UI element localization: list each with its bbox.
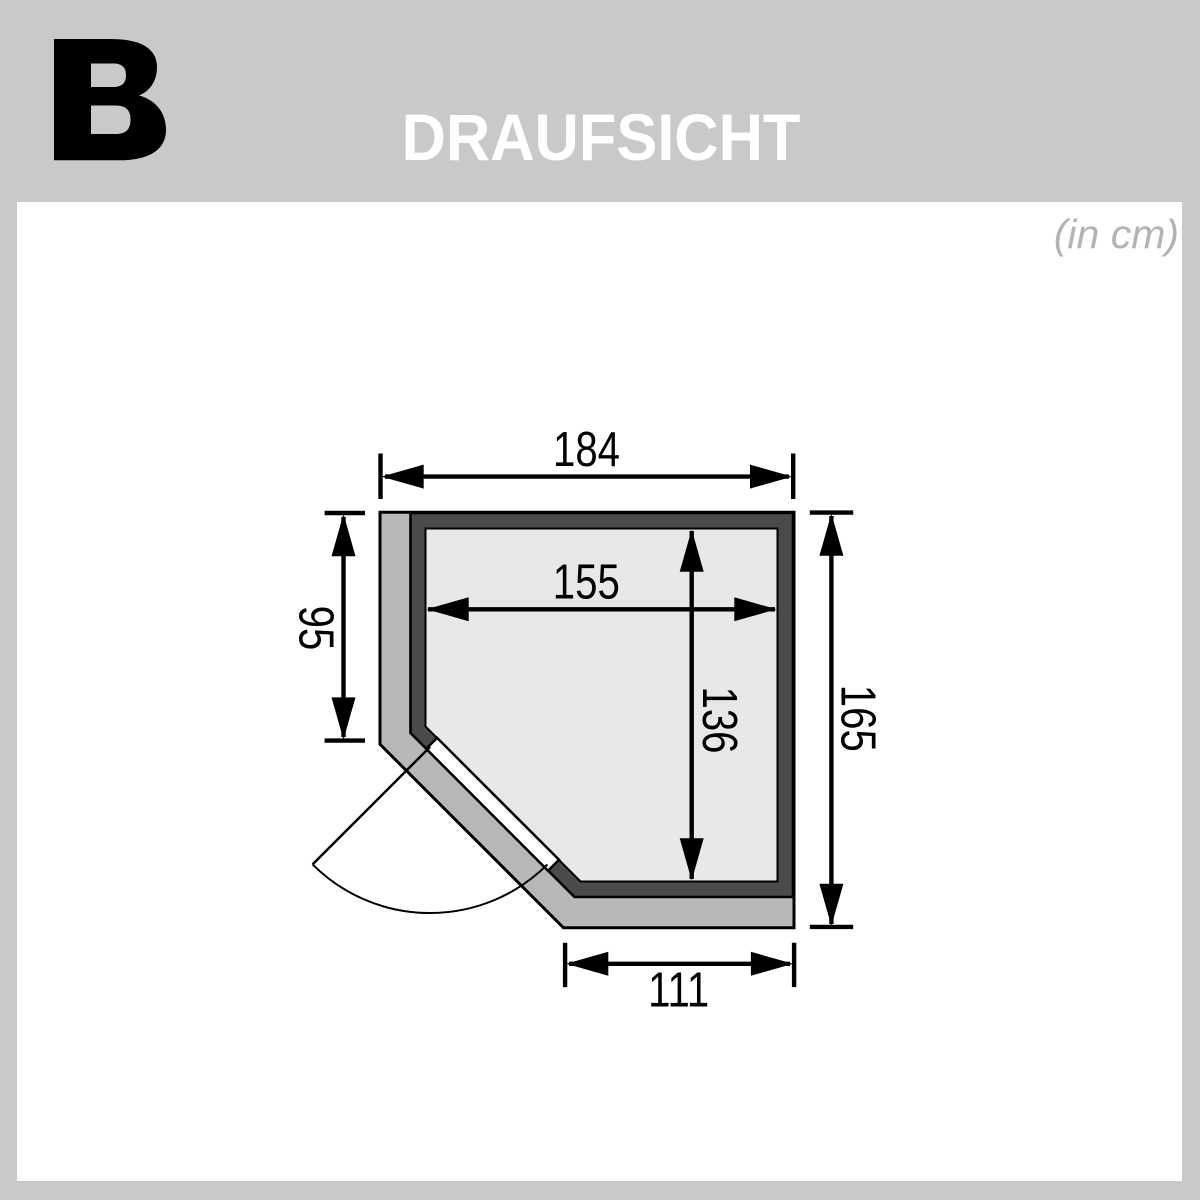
svg-text:DRAUFSICHT: DRAUFSICHT [402, 100, 801, 175]
svg-text:165: 165 [831, 685, 886, 752]
svg-text:155: 155 [553, 555, 620, 610]
svg-text:(in cm): (in cm) [1054, 211, 1179, 257]
svg-text:136: 136 [692, 686, 747, 753]
svg-text:111: 111 [648, 963, 709, 1018]
svg-text:95: 95 [289, 606, 344, 651]
svg-text:184: 184 [553, 422, 620, 477]
